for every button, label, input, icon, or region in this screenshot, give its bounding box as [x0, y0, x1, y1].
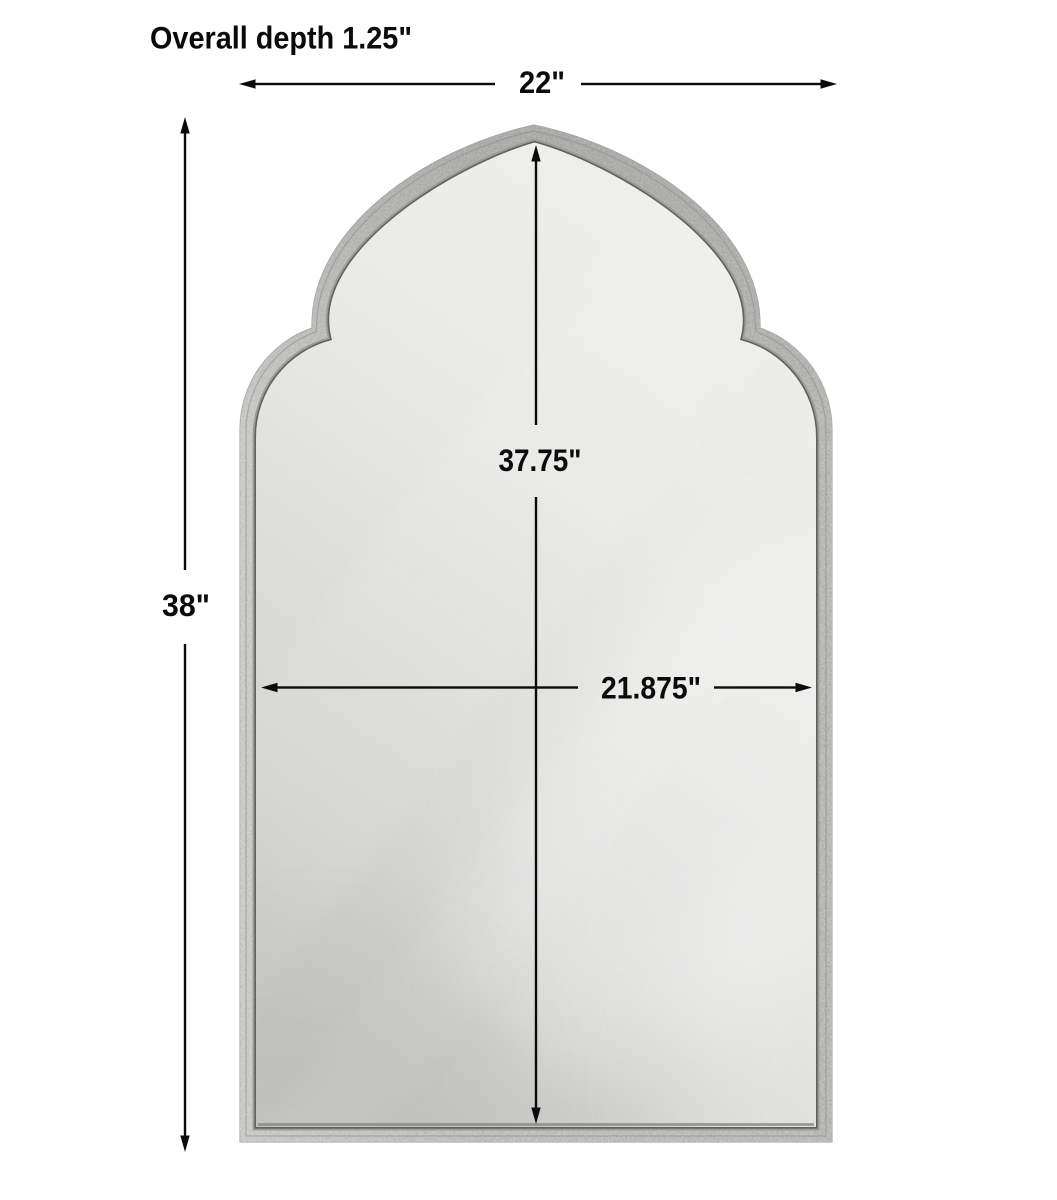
- svg-text:22": 22": [519, 64, 565, 100]
- svg-text:21.875": 21.875": [601, 670, 701, 706]
- svg-text:Overall depth 1.25": Overall depth 1.25": [150, 20, 412, 56]
- svg-text:38": 38": [162, 587, 210, 623]
- svg-text:37.75": 37.75": [499, 442, 582, 478]
